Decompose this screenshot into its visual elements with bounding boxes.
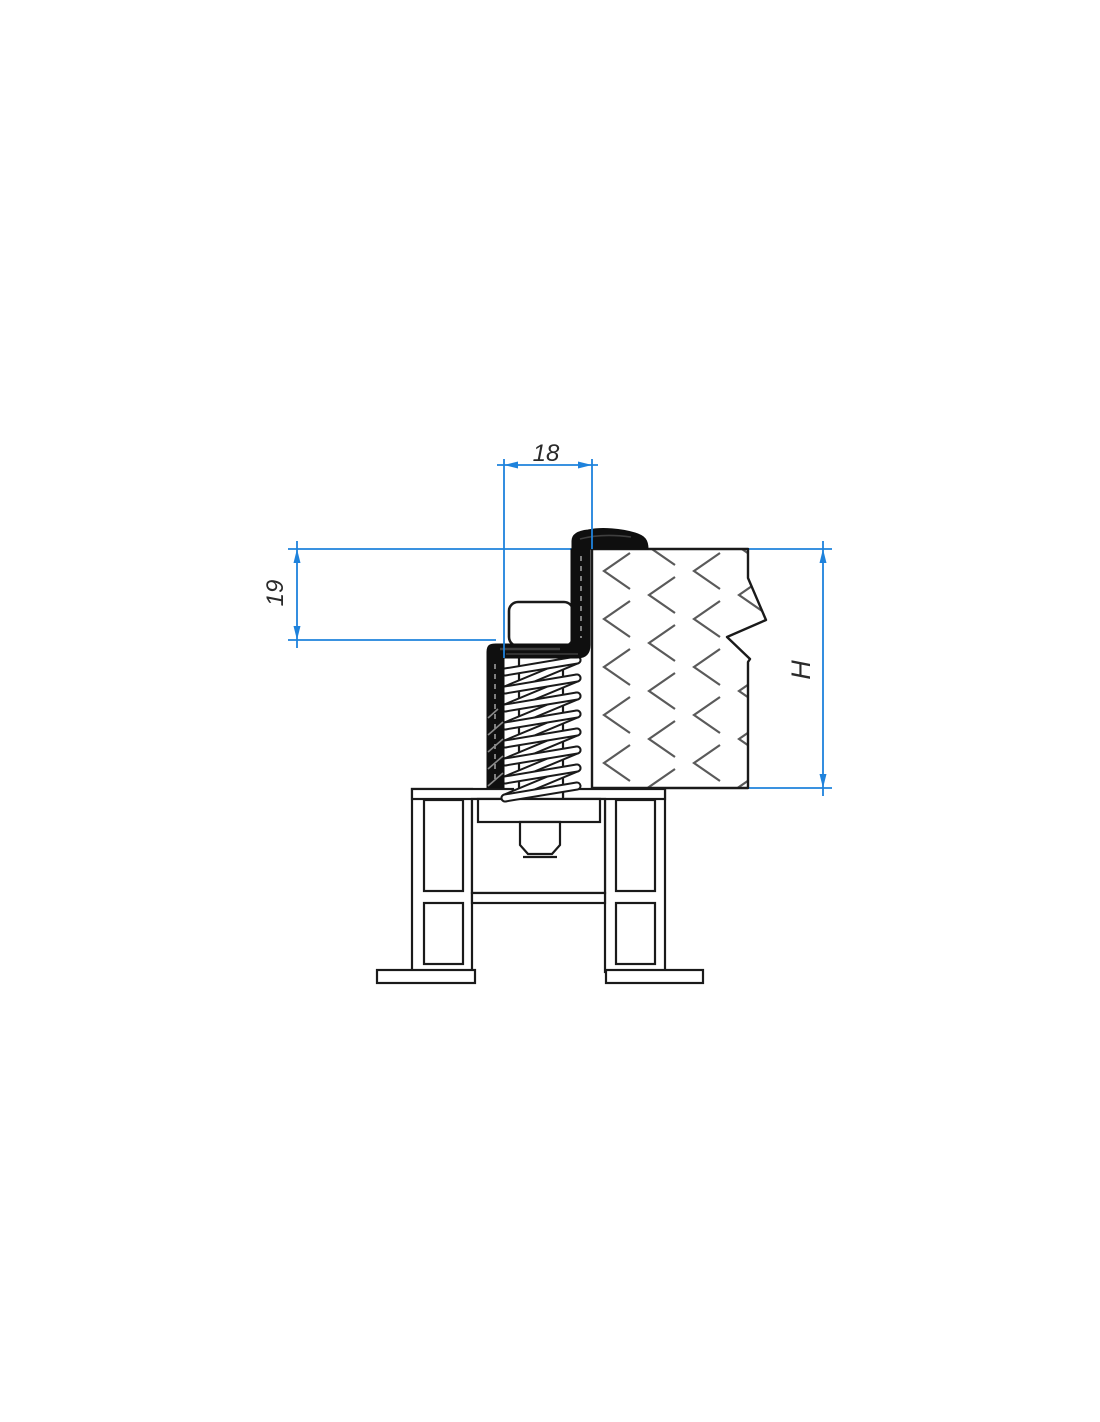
screw-head — [509, 602, 573, 646]
technical-drawing-canvas: 18 19 H — [0, 0, 1100, 1422]
rail-left-hollow-upper — [424, 800, 463, 891]
drawing-page: 18 19 H — [0, 0, 1100, 1422]
rail-left-foot — [377, 970, 475, 983]
rail-right-hollow-lower — [616, 903, 655, 964]
rail-center-web — [472, 893, 605, 903]
dimension-H-label: H — [786, 660, 816, 680]
rail-right-hollow-upper — [616, 800, 655, 891]
rail-left-hollow-lower — [424, 903, 463, 964]
rail-right-foot — [606, 970, 703, 983]
rail-top-plate-right — [563, 789, 665, 799]
t-nut-plate — [478, 799, 600, 822]
dimension-19-label: 19 — [262, 580, 289, 607]
dimension-18-label: 18 — [533, 440, 560, 467]
t-nut-stem — [520, 822, 560, 854]
rail-top-plate-left — [412, 789, 513, 799]
